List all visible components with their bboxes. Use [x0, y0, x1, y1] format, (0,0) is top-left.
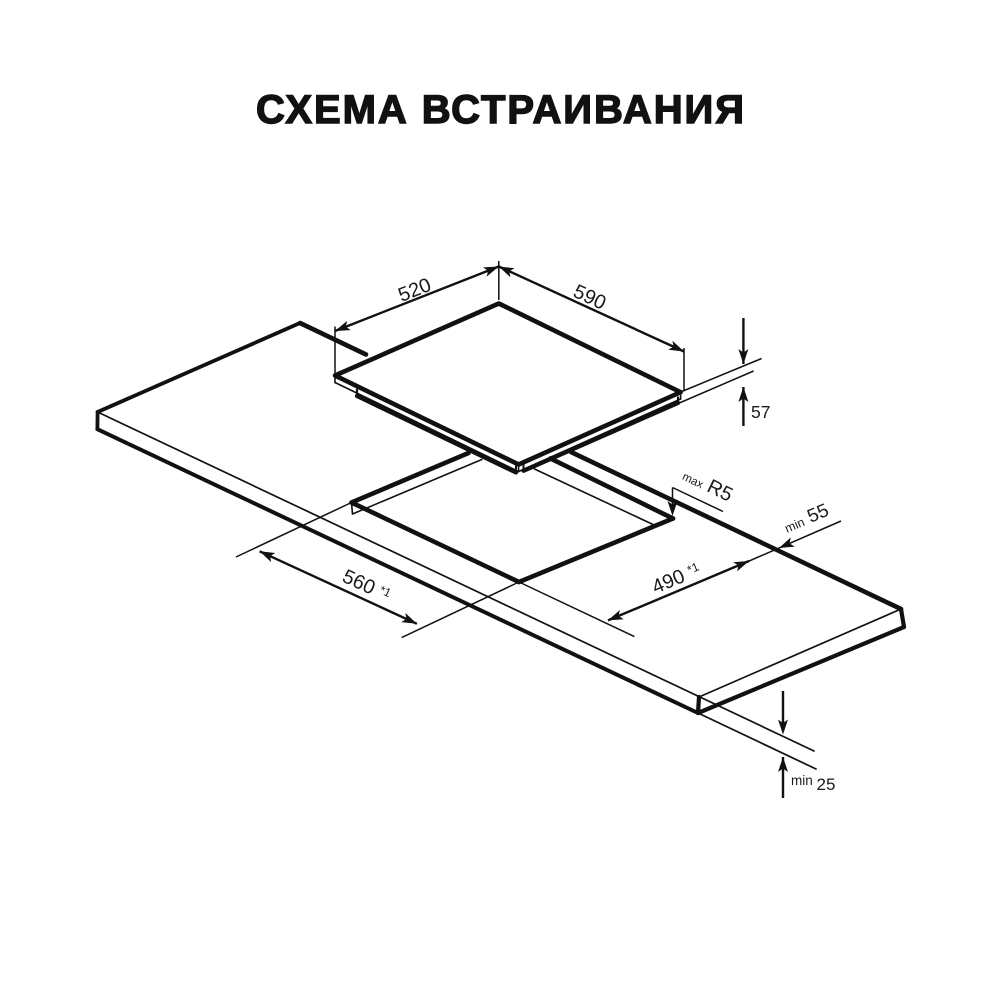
svg-text:57: 57: [751, 402, 770, 422]
svg-text:СХЕМА ВСТРАИВАНИЯ: СХЕМА ВСТРАИВАНИЯ: [256, 88, 744, 132]
